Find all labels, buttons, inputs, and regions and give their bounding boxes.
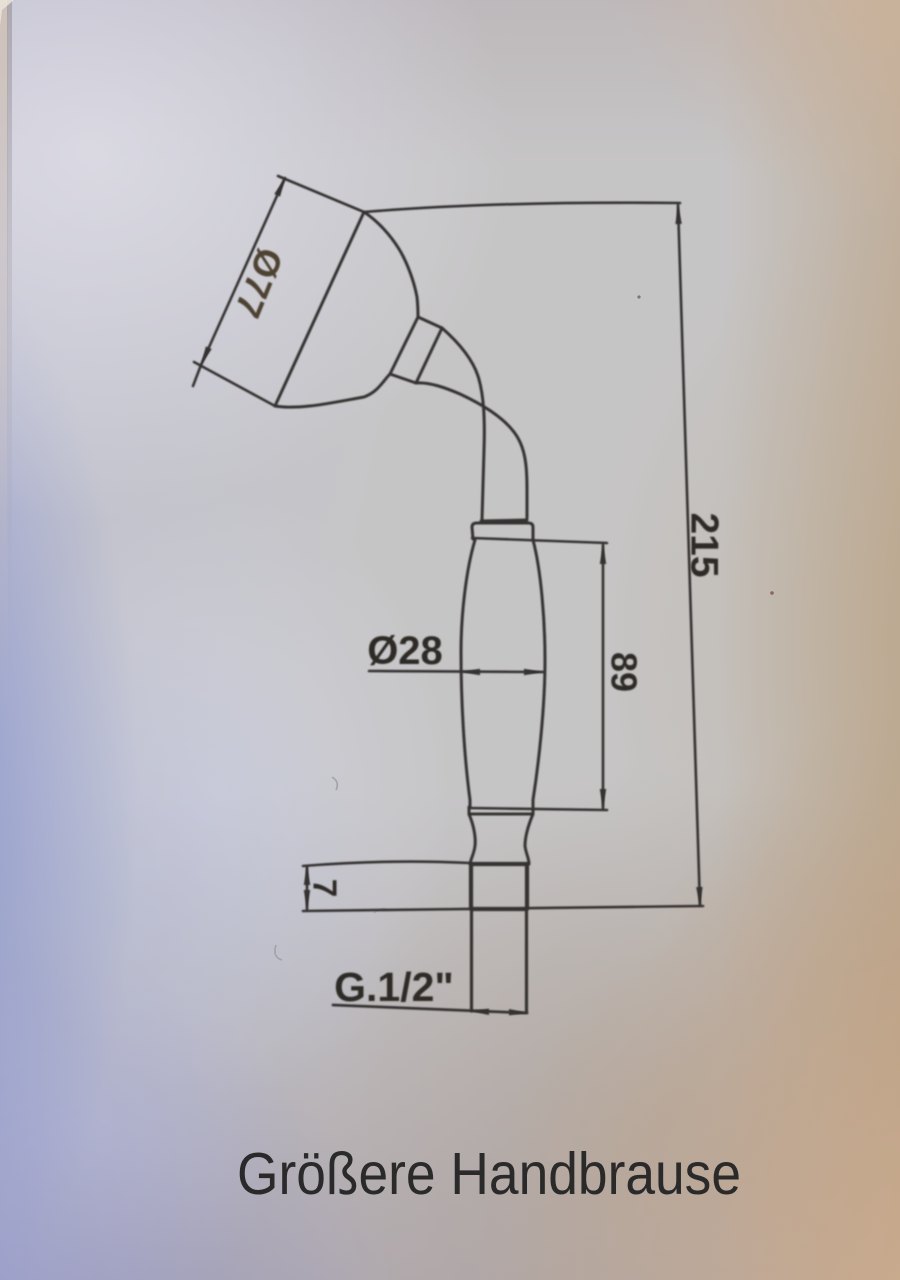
svg-text:7: 7 <box>306 879 343 897</box>
svg-text:89: 89 <box>603 652 644 692</box>
svg-text:Ø28: Ø28 <box>367 629 443 673</box>
svg-text:G.1/2": G.1/2" <box>334 964 454 1010</box>
svg-text:215: 215 <box>683 512 726 577</box>
svg-text:Größere Handbrause: Größere Handbrause <box>237 1141 741 1207</box>
svg-text:Ø77: Ø77 <box>226 242 291 324</box>
